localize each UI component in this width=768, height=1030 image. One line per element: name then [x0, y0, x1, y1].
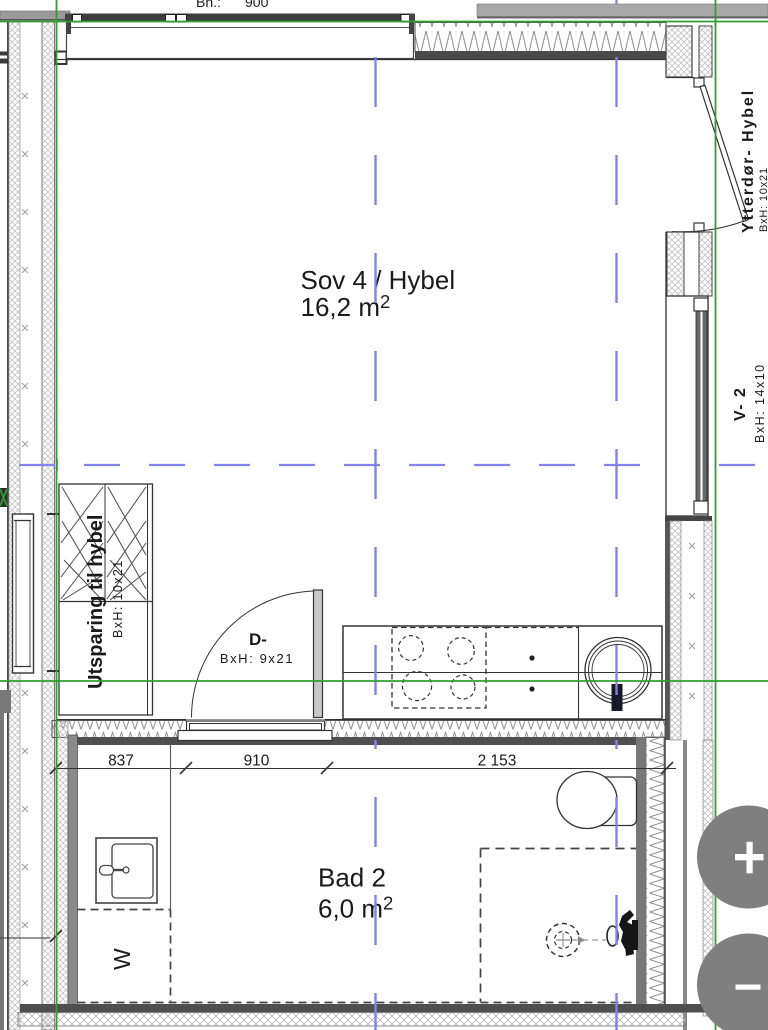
svg-text:910: 910 [244, 753, 270, 770]
svg-text:D-: D- [249, 630, 267, 649]
svg-text:BxH: 9x21: BxH: 9x21 [220, 651, 294, 666]
svg-text:BxH: 10x21: BxH: 10x21 [111, 559, 125, 638]
svg-text:Bad 2: Bad 2 [318, 863, 386, 893]
svg-text:Ytterdør- Hybel: Ytterdør- Hybel [740, 89, 757, 233]
svg-text:2 153: 2 153 [478, 753, 517, 770]
svg-text:W: W [109, 948, 135, 970]
svg-text:Sov 4 / Hybel: Sov 4 / Hybel [301, 265, 456, 295]
svg-text:16,2 m2: 16,2 m2 [301, 291, 391, 322]
svg-text:V- 2: V- 2 [732, 387, 749, 421]
svg-text:Bh.:: Bh.: [196, 0, 221, 10]
svg-text:6,0 m2: 6,0 m2 [318, 893, 393, 924]
svg-text:837: 837 [108, 753, 134, 770]
svg-text:BxH: 10x21: BxH: 10x21 [758, 167, 768, 232]
svg-text:900: 900 [245, 0, 269, 10]
svg-text:Utsparing til hybel: Utsparing til hybel [85, 515, 107, 689]
svg-text:BxH: 14x10: BxH: 14x10 [753, 363, 767, 443]
